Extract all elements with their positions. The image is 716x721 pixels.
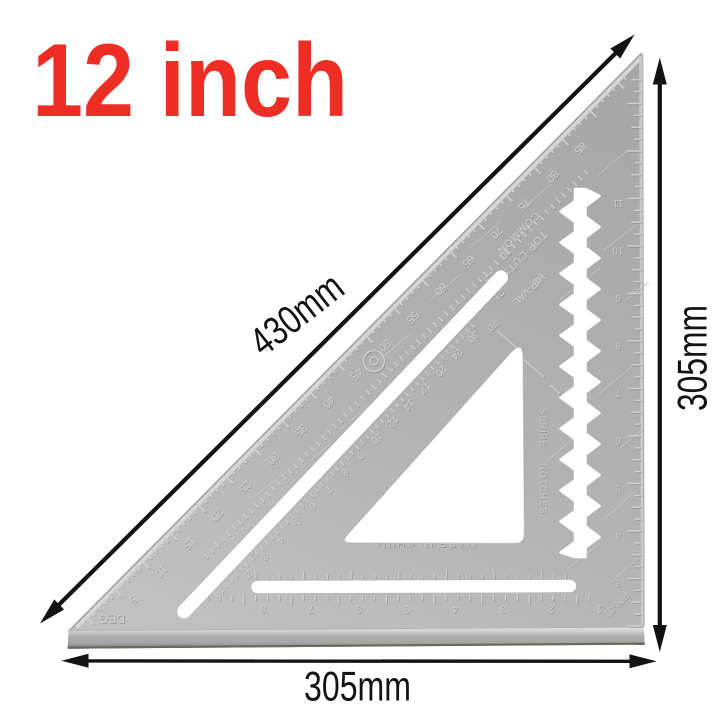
- svg-text:4: 4: [452, 603, 458, 615]
- svg-text:6: 6: [356, 603, 362, 615]
- svg-text:10: 10: [612, 245, 624, 256]
- svg-text:DEG: DEG: [99, 612, 125, 626]
- svg-text:8: 8: [615, 340, 621, 351]
- svg-text:5: 5: [404, 603, 410, 615]
- svg-text:2: 2: [548, 603, 554, 615]
- svg-text:9: 9: [615, 292, 621, 303]
- svg-text:11: 11: [612, 197, 623, 208]
- svg-text:4: 4: [615, 530, 621, 541]
- svg-text:6: 6: [615, 435, 621, 446]
- svg-text:7: 7: [615, 387, 621, 398]
- svg-text:1: 1: [596, 603, 602, 615]
- svg-text:SCRIBE: SCRIBE: [538, 408, 548, 448]
- svg-text:NOTCHES: NOTCHES: [538, 463, 548, 514]
- svg-text:12 inch: 12 inch: [32, 23, 348, 139]
- svg-text:8: 8: [260, 603, 266, 615]
- svg-text:5: 5: [615, 482, 621, 493]
- svg-text:3: 3: [615, 577, 621, 588]
- svg-text:3: 3: [500, 603, 506, 615]
- svg-text:7: 7: [308, 603, 314, 615]
- svg-text:305mm: 305mm: [304, 663, 411, 710]
- svg-text:305mm: 305mm: [669, 305, 716, 411]
